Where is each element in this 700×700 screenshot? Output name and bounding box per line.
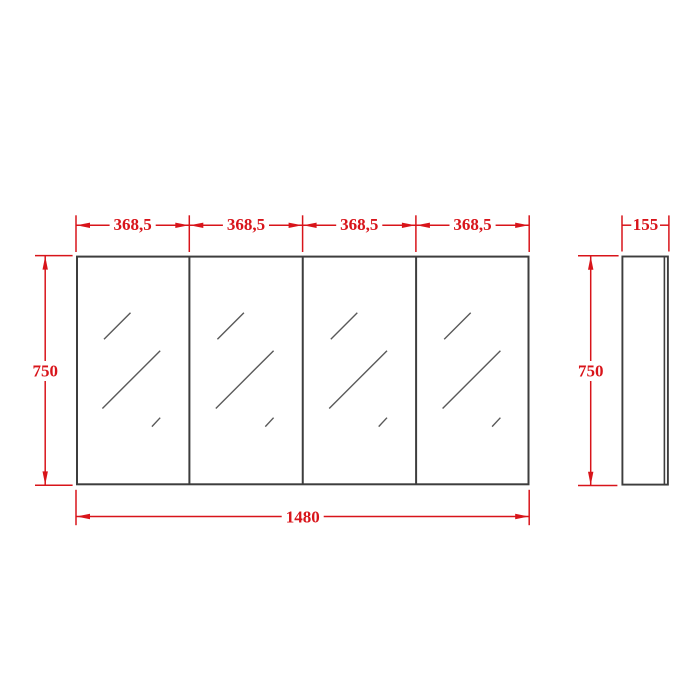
svg-text:368,5: 368,5	[453, 215, 491, 234]
svg-text:750: 750	[32, 362, 58, 381]
svg-text:368,5: 368,5	[340, 215, 378, 234]
svg-text:1480: 1480	[286, 507, 320, 526]
svg-text:750: 750	[578, 362, 604, 381]
svg-text:368,5: 368,5	[227, 215, 265, 234]
svg-text:368,5: 368,5	[114, 215, 152, 234]
svg-text:155: 155	[633, 215, 659, 234]
